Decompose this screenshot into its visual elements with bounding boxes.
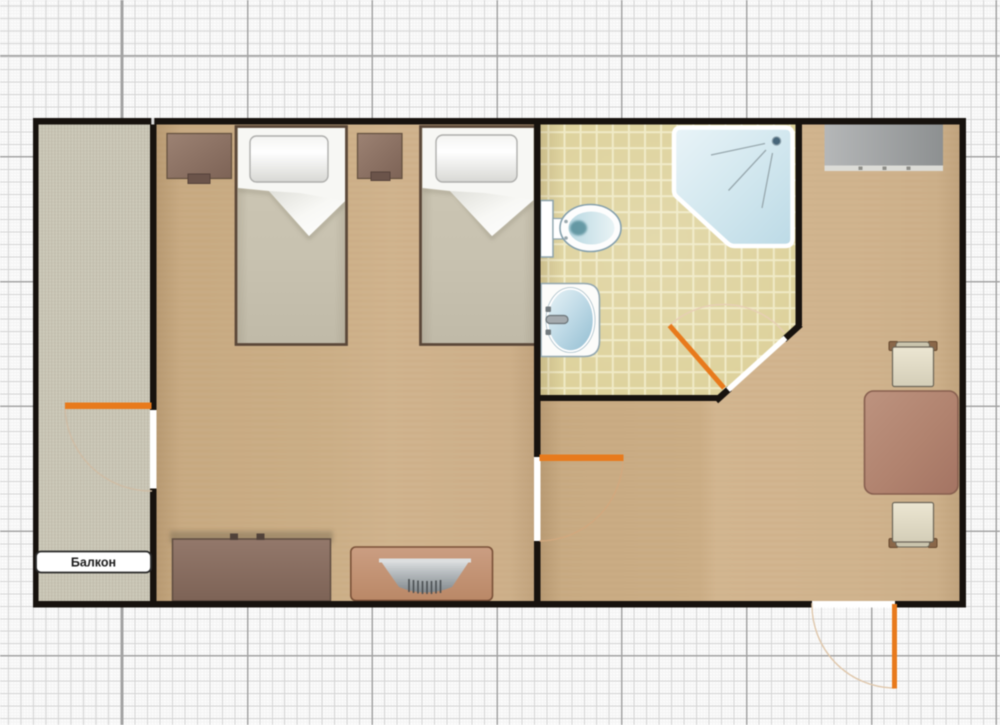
svg-text:Балкон: Балкон [71,556,116,570]
